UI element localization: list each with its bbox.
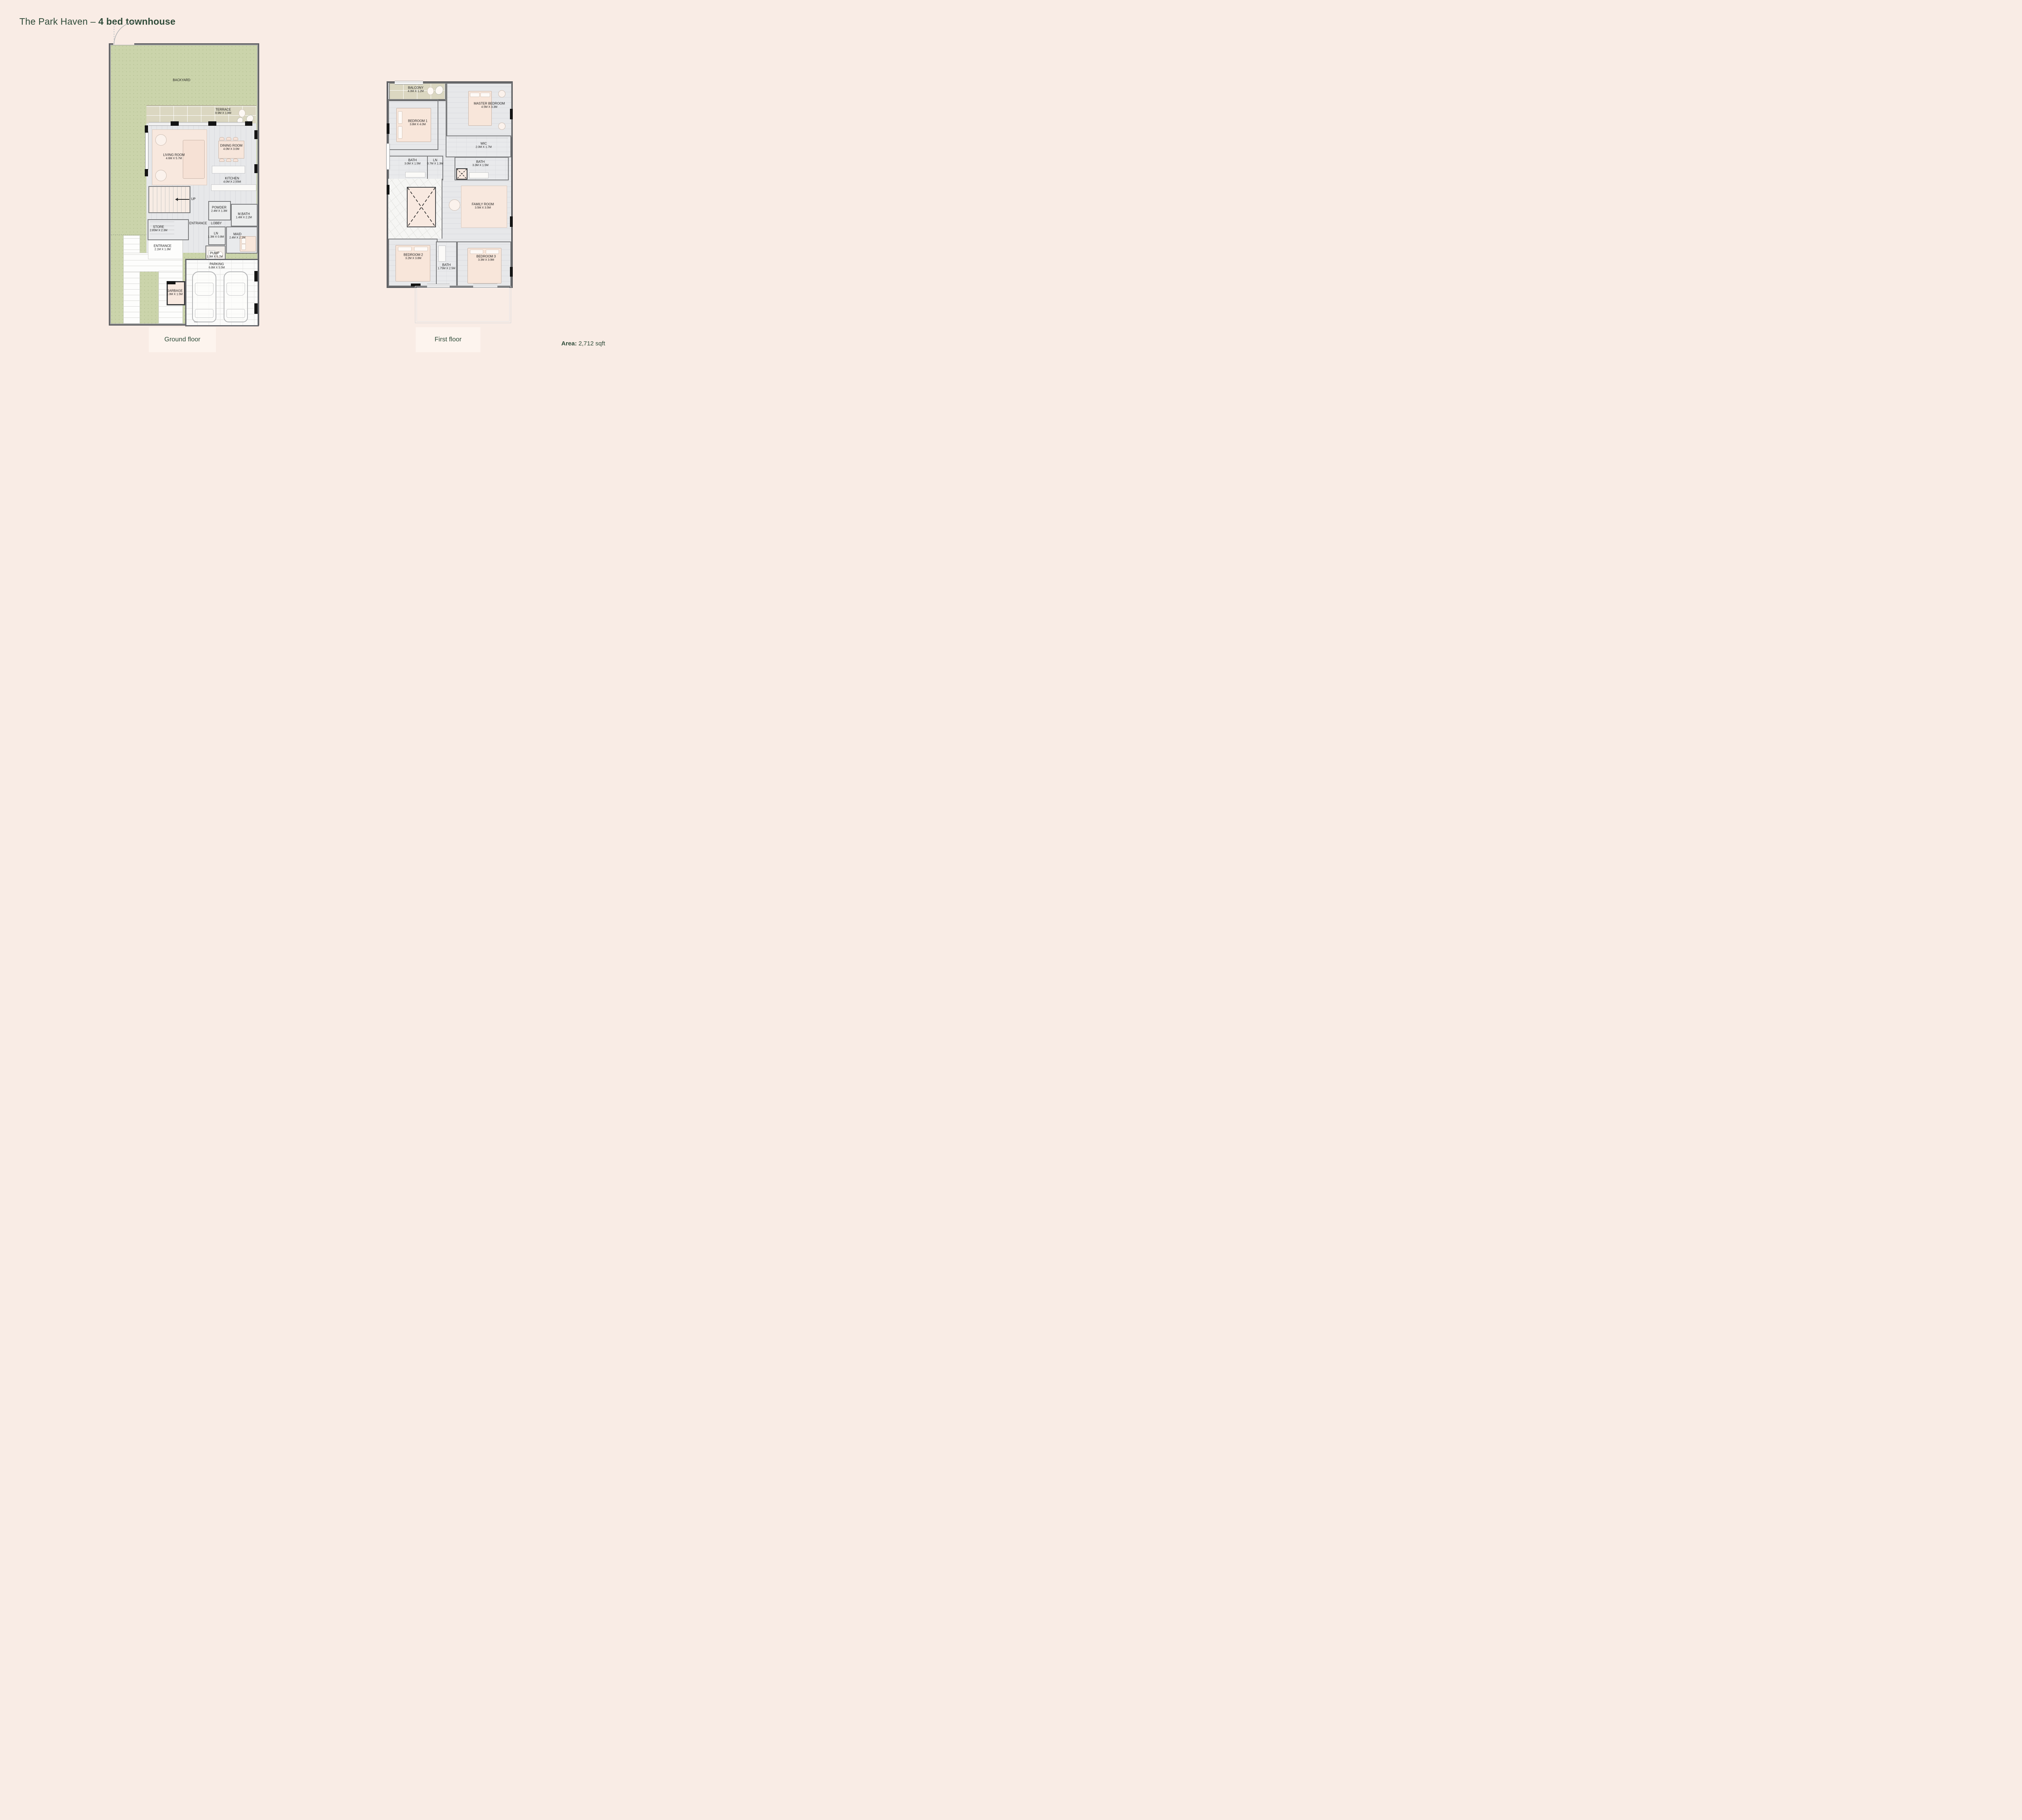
room-label-master-bedroom: MASTER BEDROOM4.5M X 3.3M bbox=[474, 102, 505, 109]
room-label-bedroom-1: BEDROOM 13.8M X 4.0M bbox=[408, 120, 427, 127]
caption-ground-floor: Ground floor bbox=[149, 327, 216, 352]
room-label-balcony: BALCONY4.0M X 1.2M bbox=[408, 87, 424, 93]
room-label-maid: MAID2.4M X 2.1M bbox=[229, 233, 245, 240]
caption-first-floor: First floor bbox=[416, 327, 480, 352]
room-label-water-meter: WM bbox=[194, 322, 198, 324]
room-label-garbage: GARBAGE1.0M X 1.5M bbox=[167, 290, 183, 296]
area-label: Area: 2,712 sqft bbox=[561, 340, 605, 347]
room-label-store: STORE2.85M X 2.3M bbox=[150, 226, 167, 233]
room-label-bedroom-2: BEDROOM 23.2M X 3.8M bbox=[404, 254, 423, 260]
page: The Park Haven – 4 bed townhouse bbox=[0, 0, 647, 364]
page-title: The Park Haven – 4 bed townhouse bbox=[19, 16, 176, 27]
gate-swing-arc bbox=[113, 21, 137, 44]
room-label-living-room: LIVING ROOM4.6M X 5.7M bbox=[163, 154, 184, 161]
room-label-bath-2: BATH3.3M X 1.5M bbox=[472, 161, 489, 167]
room-label-up: UP bbox=[191, 198, 195, 201]
room-label-entrance-ext: ENTRANCE2.1M X 1.3M bbox=[154, 245, 171, 252]
area-label-value: 2,712 sqft bbox=[577, 340, 605, 347]
room-label-laundry-f: LN0.7M X 1.3M bbox=[427, 159, 443, 166]
ground-floor-plan: BACKYARDTERRACE8.9M X 1.8MLIVING ROOM4.6… bbox=[109, 43, 259, 326]
room-label-bedroom-3: BEDROOM 33.3M X 3.9M bbox=[476, 255, 496, 262]
ground-floor-labels: BACKYARDTERRACE8.9M X 1.8MLIVING ROOM4.6… bbox=[110, 44, 258, 324]
room-label-backyard: BACKYARD bbox=[173, 79, 190, 83]
first-floor-labels: BALCONY4.0M X 1.2MMASTER BEDROOM4.5M X 3… bbox=[388, 83, 511, 286]
room-label-bath-3: BATH1.75M X 2.5M bbox=[438, 264, 455, 271]
room-label-kitchen: KITCHEN4.0M X 2.55M bbox=[223, 177, 241, 184]
room-label-wic: WIC2.0M X 1.7M bbox=[476, 142, 492, 149]
title-prefix: The Park Haven – bbox=[19, 16, 98, 27]
room-label-lobby: LOBBY bbox=[211, 222, 222, 226]
room-label-dining-room: DINING ROOM4.0M X 3.0M bbox=[220, 144, 242, 151]
room-label-family-room: FAMILY ROOM3.5M X 3.5M bbox=[472, 203, 494, 210]
room-label-powder: POWDER2.4M X 1.3M bbox=[211, 206, 227, 213]
caption-ground-floor-text: Ground floor bbox=[165, 336, 201, 343]
room-label-bath-1: BATH3.0M X 1.5M bbox=[404, 159, 421, 166]
room-label-entrance-hall: ENTRANCE bbox=[189, 222, 207, 226]
area-label-key: Area: bbox=[561, 340, 577, 347]
room-label-parking: PARKING6.8M X 5.5M bbox=[209, 263, 225, 270]
room-label-laundry: LN1.3M X 0.8M bbox=[208, 232, 224, 239]
room-label-pump: PUMP1.3M X 0.7M bbox=[207, 252, 223, 259]
first-floor-plan: BALCONY4.0M X 1.2MMASTER BEDROOM4.5M X 3… bbox=[387, 81, 513, 288]
caption-first-floor-text: First floor bbox=[435, 336, 462, 343]
roof-outline bbox=[415, 286, 511, 323]
room-label-terrace: TERRACE8.9M X 1.8M bbox=[215, 108, 231, 115]
room-label-m-bath: M.BATH1.4M X 2.2M bbox=[236, 213, 252, 220]
